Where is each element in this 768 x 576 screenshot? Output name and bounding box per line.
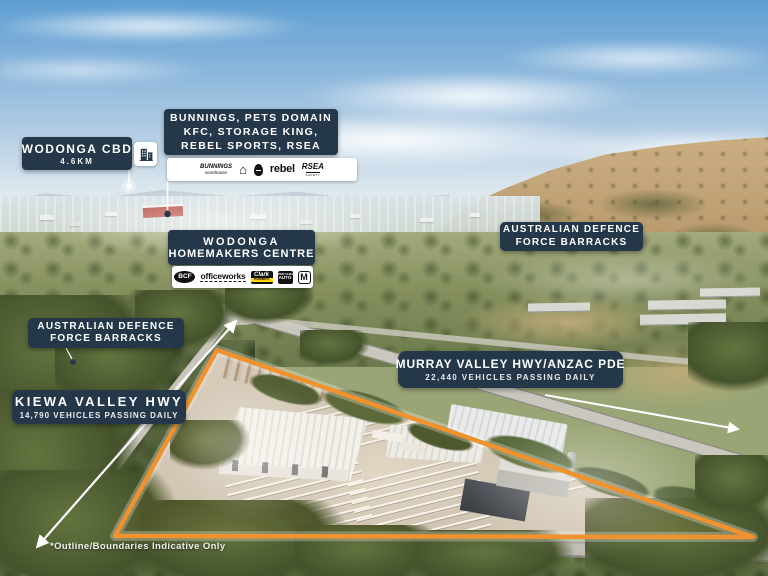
clark-rubber-logo: Clark RUBBER	[251, 271, 273, 284]
adf-left-line-1: AUSTRALIAN DEFENCE	[37, 321, 174, 334]
retail-logo-strip: BUNNINGS warehouse ⌂ rebel RSEA SAFETY	[167, 158, 357, 181]
bunnings-logo: BUNNINGS warehouse	[200, 164, 232, 176]
label-homemakers-centre: WODONGA HOMEMAKERS CENTRE	[168, 230, 315, 265]
homemakers-line-1: WODONGA	[203, 236, 280, 248]
rsea-logo-subtext: SAFETY	[306, 172, 321, 177]
murray-traffic-arrow	[545, 395, 737, 429]
homemakers-logo-strip: BCF officeworks Clark RUBBER SUPER CHEAP…	[172, 266, 313, 288]
bunnings-logo-subtext: warehouse	[205, 171, 227, 176]
wodonga-cbd-distance: 4.6KM	[60, 157, 94, 166]
retail-line-2: KFC, STORAGE KING,	[184, 125, 319, 139]
bunnings-logo-text: BUNNINGS	[200, 164, 232, 170]
mcdonalds-logo: M	[298, 271, 311, 284]
kfc-colonel-icon	[254, 164, 263, 176]
officeworks-logo: officeworks	[200, 272, 245, 283]
supercheap-logo-subtext: AUTO	[279, 276, 292, 281]
label-wodonga-cbd: WODONGA CBD 4.6KM	[22, 137, 132, 170]
adf-leader-line	[66, 348, 72, 359]
pets-domain-house-icon: ⌂	[239, 164, 247, 176]
wodonga-cbd-title: WODONGA CBD	[22, 142, 133, 156]
adf-right-line-2: FORCE BARRACKS	[516, 237, 628, 250]
clark-logo-subtext: RUBBER	[251, 278, 273, 282]
label-adf-barracks-right: AUSTRALIAN DEFENCE FORCE BARRACKS	[500, 222, 643, 251]
label-murray-valley-hwy: MURRAY VALLEY HWY/ANZAC PDE 22,440 VEHIC…	[398, 351, 623, 388]
retail-line-1: BUNNINGS, PETS DOMAIN	[170, 111, 332, 125]
kiewa-title: KIEWA VALLEY HWY	[15, 394, 183, 409]
cbd-location-dot	[126, 183, 132, 189]
label-adf-barracks-left: AUSTRALIAN DEFENCE FORCE BARRACKS	[28, 318, 184, 348]
boundary-disclaimer: *Outline/Boundaries Indicative Only	[50, 541, 226, 552]
bcf-logo: BCF	[174, 271, 195, 283]
retail-location-dot	[164, 211, 170, 217]
kiewa-traffic-count: 14,790 VEHICLES PASSING DAILY	[20, 411, 179, 420]
retail-line-3: REBEL SPORTS, RSEA	[181, 139, 321, 153]
murray-traffic-count: 22,440 VEHICLES PASSING DAILY	[425, 373, 595, 382]
rebel-logo: rebel	[270, 164, 295, 175]
adf-right-line-1: AUSTRALIAN DEFENCE	[503, 224, 640, 237]
homemakers-line-2: HOMEMAKERS CENTRE	[169, 248, 315, 260]
aerial-property-marketing-image: WODONGA CBD 4.6KM BUNNINGS, PETS DOMAIN …	[0, 0, 768, 576]
murray-title: MURRAY VALLEY HWY/ANZAC PDE	[396, 357, 626, 371]
adf-location-dot	[70, 359, 76, 365]
rsea-logo-text: RSEA	[302, 163, 324, 171]
label-kiewa-valley-hwy: KIEWA VALLEY HWY 14,790 VEHICLES PASSING…	[12, 390, 186, 424]
label-retail-precinct: BUNNINGS, PETS DOMAIN KFC, STORAGE KING,…	[164, 109, 338, 155]
rsea-logo: RSEA SAFETY	[302, 163, 324, 177]
supercheap-auto-logo: SUPER CHEAP AUTO	[278, 271, 293, 284]
adf-left-line-2: FORCE BARRACKS	[50, 333, 162, 346]
annotation-overlay	[0, 0, 768, 576]
city-buildings-icon	[134, 142, 157, 166]
